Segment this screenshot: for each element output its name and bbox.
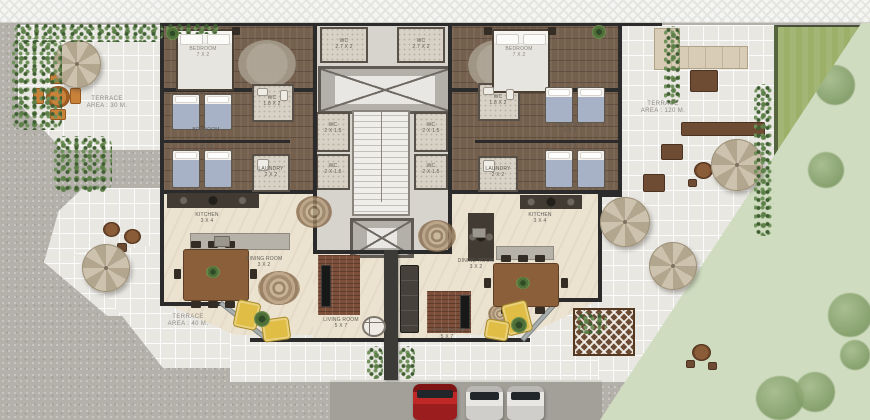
label-bedroom-twin-left-1: BEDROOM4 X 3: [192, 127, 219, 139]
label-living-left: LIVING ROOM5 X 7: [323, 317, 359, 329]
room-dims: 5 X 7: [323, 323, 359, 329]
dining-chairs: [501, 255, 511, 262]
planter-box: [681, 122, 765, 136]
twin-bed: [545, 150, 573, 188]
nightstand: [484, 27, 492, 35]
room-dims: 2 X 1.5: [324, 169, 341, 175]
kitchen-counter-appliances: [167, 193, 259, 208]
room-dims: 2 X 2: [258, 172, 283, 178]
tree: [795, 372, 835, 412]
hedge: [367, 346, 383, 379]
room-dims: 3 X 2: [458, 264, 495, 270]
label-dining-right: DINING ROOM3 X 2: [458, 258, 495, 270]
label-wc-core: WC2 X 1.5: [324, 163, 341, 175]
label-wc-top-right: WC2.7 X 2: [412, 38, 429, 50]
room-dims: 2 X 1.5: [422, 169, 439, 175]
core-wall-right: [448, 22, 452, 254]
red-car: [413, 384, 457, 420]
room-dims: 3 X 2: [246, 262, 283, 268]
herringbone-border: [0, 0, 870, 22]
label-bedroom-twin-right-1: BEDROOM4 X 3: [556, 122, 583, 134]
twin-bed: [577, 150, 605, 188]
terrace-area: AREA : 30 M.: [87, 103, 128, 110]
dining-chair: [250, 269, 257, 279]
wall-divider: [475, 140, 620, 143]
label-dining-left: DINING ROOM3 X 2: [246, 256, 283, 268]
label-wc-apartment-right: WC1.8 X 2: [489, 94, 506, 106]
tree: [808, 152, 844, 188]
label-bedroom-twin-right-2: 4 X 3: [564, 143, 577, 149]
plant-pot: [254, 311, 270, 327]
round-rug: [238, 40, 296, 88]
twin-bed: [172, 94, 200, 130]
label-kitchen-left: KITCHEN3 X 4: [195, 212, 218, 224]
label-wc-top-left: WC2.7 X 2: [335, 38, 352, 50]
white-car: [466, 386, 503, 420]
room-dims: 4 X 3: [192, 133, 219, 139]
outdoor-mat: [661, 144, 683, 160]
terrace-area: AREA : 120 M.: [641, 108, 686, 115]
outdoor-mat: [643, 174, 665, 192]
stool: [686, 360, 695, 368]
dining-chairs: [191, 241, 201, 248]
wall-left: [160, 22, 164, 306]
label-terrace-40: TERRACEAREA : 40 M.: [168, 314, 209, 328]
plant-pot: [166, 27, 179, 40]
coffee-table: [690, 70, 718, 92]
ornate-rug: [258, 271, 300, 305]
tree: [840, 340, 870, 370]
windshield: [417, 390, 453, 398]
room-dims: 2 X 2: [485, 172, 510, 178]
dining-chair: [561, 278, 568, 288]
shrubs: [12, 38, 62, 130]
label-terrace-30: TERRACEAREA : 30 M.: [87, 96, 128, 110]
tv-screen: [461, 296, 469, 328]
toilet: [280, 90, 288, 101]
double-bed: [492, 29, 550, 93]
umbrella: [82, 244, 130, 292]
wall-right-upper: [618, 22, 622, 195]
bistro-table: [103, 222, 120, 237]
floor-plan-canvas: BEDROOM7 X 2 BEDROOM7 X 2 WC2.7 X 2 WC2.…: [0, 0, 870, 420]
umbrella: [600, 197, 650, 247]
plant-pot: [511, 317, 527, 333]
twin-bed: [545, 87, 573, 123]
outdoor-chair: [70, 88, 81, 104]
terrace-name: TERRACE: [87, 96, 128, 103]
tree: [828, 293, 870, 337]
table-centerpiece: [206, 266, 220, 278]
ornate-rug: [296, 196, 332, 228]
label-living-right: LIVING ROOM5 X 7: [429, 328, 465, 340]
twin-bed: [172, 150, 200, 188]
double-bed: [176, 29, 234, 91]
dining-chair: [484, 278, 491, 288]
label-bedroom-master-left: BEDROOM7 X 2: [189, 46, 216, 58]
room-dims: 3 X 4: [195, 218, 218, 224]
label-terrace-120: TERRACEAREA : 120 M.: [641, 101, 686, 115]
table-centerpiece: [516, 277, 530, 289]
bistro-table: [692, 344, 711, 361]
wall-lower-right: [556, 298, 602, 302]
label-laundry-right: LAUNDRY2 X 2: [485, 166, 510, 178]
terrace-name: TERRACE: [641, 101, 686, 108]
sofa-dark: [400, 265, 419, 333]
label-laundry-left: LAUNDRY2 X 2: [258, 166, 283, 178]
kitchen-counter: [190, 233, 290, 250]
armchair-yellow: [483, 318, 510, 342]
label-bedroom-twin-left-2: 4 X 3: [201, 144, 214, 150]
toilet: [506, 89, 514, 100]
room-dims: 7 X 2: [505, 52, 532, 58]
nightstand: [232, 27, 240, 35]
terrace-area: AREA : 40 M.: [168, 321, 209, 328]
room-dims: 1.8 X 2: [263, 101, 280, 107]
label-wc-apartment-left: WC1.8 X 2: [263, 95, 280, 107]
dining-chair: [174, 269, 181, 279]
room-dims: 5 X 7: [429, 334, 465, 340]
pergola-plants: [577, 312, 607, 334]
label-bedroom-master-right: BEDROOM7 X 2: [505, 46, 532, 58]
room-dims: 4 X 3: [564, 143, 577, 149]
label-kitchen-right: KITCHEN3 X 4: [528, 212, 551, 224]
kitchen-sink: [472, 228, 486, 238]
kitchen-counter-appliances: [520, 195, 582, 209]
elevator-shaft: [318, 66, 452, 114]
wall-divider: [163, 140, 290, 143]
room-dims: 4 X 3: [201, 144, 214, 150]
vines: [754, 84, 774, 236]
label-wc-core: WC2 X 1.5: [422, 163, 439, 175]
room-dims: 2 X 1.5: [324, 128, 341, 134]
stool: [708, 362, 717, 370]
shrubs: [54, 136, 112, 192]
bistro-table: [124, 229, 141, 244]
round-side-table: [362, 316, 386, 337]
room-dims: 1.8 X 2: [489, 100, 506, 106]
staircase: [352, 110, 410, 216]
plant-pot: [592, 25, 606, 39]
tv-screen: [322, 266, 330, 306]
umbrella: [649, 242, 697, 290]
room-dims: 2.7 X 2: [335, 44, 352, 50]
windshield: [511, 392, 540, 400]
kitchen-sink: [214, 236, 230, 247]
room-dims: 4 X 3: [556, 128, 583, 134]
hedge: [399, 346, 415, 379]
central-column: [384, 250, 398, 380]
terrace-name: TERRACE: [168, 314, 209, 321]
room-dims: 2.7 X 2: [412, 44, 429, 50]
wall-top: [160, 22, 662, 26]
twin-bed: [204, 94, 232, 130]
room-dims: 2 X 1.5: [422, 128, 439, 134]
dining-chairs: [191, 301, 201, 308]
vines: [664, 26, 680, 104]
room-dims: 3 X 4: [528, 218, 551, 224]
nightstand: [548, 27, 556, 35]
windshield: [470, 392, 499, 400]
ornate-rug: [418, 220, 456, 252]
label-wc-core: WC2 X 1.5: [324, 122, 341, 134]
room-dims: 7 X 2: [189, 52, 216, 58]
twin-bed: [204, 150, 232, 188]
white-car: [507, 386, 544, 420]
label-wc-core: WC2 X 1.5: [422, 122, 439, 134]
twin-bed: [577, 87, 605, 123]
stool: [688, 179, 697, 187]
